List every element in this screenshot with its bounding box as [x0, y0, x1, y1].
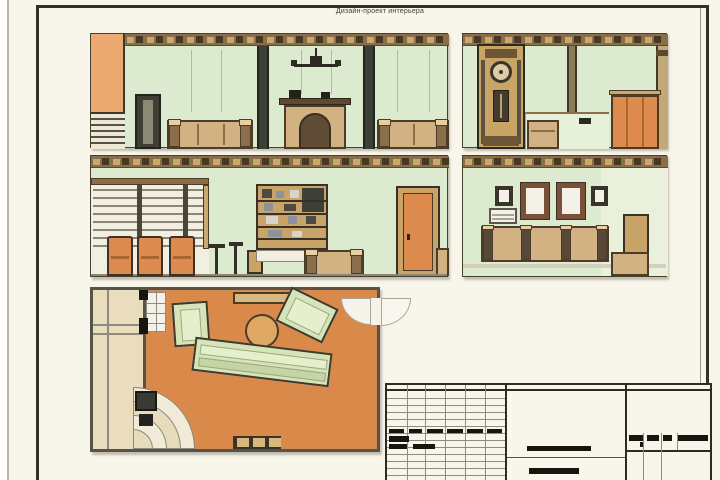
wall-panel-line: [221, 50, 222, 112]
cornice-dentil: [594, 36, 601, 43]
cornice-trim: [273, 159, 280, 165]
shelf-line: [258, 238, 326, 240]
cornice-dentil: [416, 36, 423, 43]
cornice-dentil: [574, 158, 581, 165]
grid-line-h: [387, 433, 505, 434]
title-block-cell-line: [661, 433, 662, 480]
pilaster-capital: [656, 50, 668, 56]
cornice-trim: [333, 159, 340, 165]
cornice-dentil: [342, 158, 349, 165]
plan-hall-divider: [107, 290, 109, 449]
title-block-header-smudge: [647, 435, 659, 441]
shelf-item: [266, 216, 278, 224]
cornice-trim: [465, 37, 472, 43]
cornice-trim: [605, 159, 612, 165]
radiator-line: [492, 214, 514, 216]
cornice-trim: [565, 37, 572, 43]
cornice-dentil: [534, 36, 541, 43]
cornice-dentil: [276, 36, 283, 43]
door: [396, 186, 440, 276]
clock-face-center: [499, 70, 503, 74]
cornice-dentil: [222, 158, 229, 165]
cornice-dentil: [396, 36, 403, 43]
sofa-seam: [413, 124, 415, 145]
cornice-dentil: [196, 36, 203, 43]
cornice-dentil: [594, 158, 601, 165]
cornice-dentil: [634, 36, 641, 43]
plan-hall-line: [93, 324, 145, 326]
sofa-post-cap: [520, 225, 532, 230]
cornice-trim: [413, 159, 420, 165]
grandfather-clock: [477, 44, 525, 149]
grid-line-h: [387, 419, 505, 420]
cornice-trim: [465, 159, 472, 165]
cornice-dentil: [176, 36, 183, 43]
cornice-dentil: [142, 158, 149, 165]
cornice-trim: [585, 37, 592, 43]
clock-pediment: [485, 49, 517, 58]
cornice-dentil: [102, 158, 109, 165]
cornice-dentil: [162, 158, 169, 165]
sofa: [167, 120, 253, 149]
clock-base: [483, 136, 519, 146]
chair-seat: [111, 256, 129, 259]
cabinet-divider: [626, 97, 628, 147]
clock-pendulum: [500, 94, 502, 118]
cornice-trim: [127, 37, 134, 43]
title-block-header-smudge: [629, 435, 643, 441]
cornice-dentil: [634, 158, 641, 165]
title-block-cell-line: [643, 433, 644, 480]
fireplace-mantel-shelf: [279, 98, 351, 105]
stool-leg: [234, 246, 237, 274]
sofa: [304, 250, 364, 276]
cornice-dentil: [362, 158, 369, 165]
cornice-dentil: [336, 36, 343, 43]
cornice-trim: [625, 159, 632, 165]
cornice-dentil: [654, 36, 661, 43]
grid-line-h: [387, 426, 505, 427]
blind-slat: [93, 213, 205, 215]
bench: [611, 252, 649, 276]
bar-chair: [137, 236, 163, 276]
sofa-seam: [223, 124, 225, 145]
plan-cabinet: [233, 436, 281, 449]
shelf-line: [258, 226, 326, 228]
cabinet-divider: [642, 97, 644, 147]
plan-shelving: [146, 292, 166, 332]
bar-chair: [169, 236, 195, 276]
cornice-dentil: [202, 158, 209, 165]
cornice-trim: [505, 159, 512, 165]
chandelier-arms: [294, 64, 338, 67]
plan-wall-segment: [139, 318, 148, 334]
sofa: [377, 120, 449, 149]
cornice-trim: [645, 159, 652, 165]
blind-slat: [93, 205, 205, 207]
title-block-doc-name-smudge: [527, 446, 591, 451]
fireplace-arch-opening: [299, 113, 331, 149]
blind-slat: [93, 197, 205, 199]
paper-edge-line: [7, 0, 9, 480]
cornice-dentil: [316, 36, 323, 43]
title-block-text-smudge: [389, 436, 409, 442]
title-block-divider: [625, 385, 627, 480]
long-sofa: [481, 226, 609, 262]
cornice-dentil: [554, 36, 561, 43]
chandelier-bulb: [291, 60, 297, 66]
cornice-trim: [545, 159, 552, 165]
title-block-header-smudge: [663, 435, 672, 441]
chandelier-bulb: [335, 60, 341, 66]
cornice-trim: [293, 159, 300, 165]
sofa-arm-cap: [350, 249, 363, 256]
pilaster: [363, 46, 375, 149]
shelf-item: [268, 230, 282, 237]
cornice-dentil: [376, 36, 383, 43]
cornice-dentil: [182, 158, 189, 165]
bench-cushion-line: [531, 130, 555, 132]
cornice: [463, 156, 668, 168]
chair-seat: [141, 256, 159, 259]
cornice-trim: [287, 37, 294, 43]
header-text-smudge: [409, 429, 422, 433]
cornice-trim: [193, 159, 200, 165]
chair-seat: [173, 256, 191, 259]
shelf-item: [292, 231, 302, 237]
cornice-trim: [645, 37, 652, 43]
stair-wall-orange: [91, 34, 125, 114]
grid-line-h: [387, 454, 505, 455]
title-block-mid-rule: [507, 457, 625, 458]
sofa-post-cap: [482, 225, 494, 230]
sofa-post: [483, 228, 493, 260]
wall-panel-line: [331, 50, 332, 94]
cornice-trim: [505, 37, 512, 43]
cornice-trim: [133, 159, 140, 165]
console-radiator: [489, 208, 517, 224]
cornice-trim: [347, 37, 354, 43]
cornice-trim: [387, 37, 394, 43]
picture-frame: [521, 183, 549, 219]
cornice-dentil: [322, 158, 329, 165]
cornice-trim: [187, 37, 194, 43]
bar-chair: [107, 236, 133, 276]
cornice-dentil: [614, 158, 621, 165]
stair-step: [91, 142, 125, 144]
stair-step: [91, 130, 125, 132]
staircase-steps: [91, 114, 125, 149]
cornice-trim: [233, 159, 240, 165]
cornice-trim: [153, 159, 160, 165]
blind-slat: [93, 229, 205, 231]
window-valance: [91, 178, 209, 185]
cornice-trim: [113, 159, 120, 165]
sofa-post: [561, 228, 571, 260]
sofa-arm-cap: [239, 119, 252, 126]
cornice-dentil: [442, 158, 449, 165]
wall-panel-line: [191, 50, 192, 112]
cabinet-square: [269, 438, 281, 447]
clock-side-column: [481, 60, 485, 144]
elevation-fireplace-wall: [90, 33, 448, 148]
cabinet-square: [237, 438, 249, 447]
title-block-revision-grid: [387, 385, 505, 480]
grid-line-h: [387, 468, 505, 469]
grid-line-h: [387, 398, 505, 399]
sofa-arm-cap: [168, 119, 181, 126]
cornice-trim: [247, 37, 254, 43]
cornice-dentil: [216, 36, 223, 43]
sofa-post-cap: [560, 225, 572, 230]
cornice-dentil: [302, 158, 309, 165]
cornice-trim: [327, 37, 334, 43]
cornice-trim: [407, 37, 414, 43]
radiator-line: [492, 218, 514, 220]
cornice: [91, 156, 449, 168]
sofa-arm-partial: [436, 248, 449, 276]
cornice-trim: [525, 159, 532, 165]
cornice-trim: [353, 159, 360, 165]
sofa-arm-cap: [435, 119, 448, 126]
cornice-trim: [93, 159, 100, 165]
cornice-trim: [373, 159, 380, 165]
cornice-dentil: [554, 158, 561, 165]
shelf-item: [262, 189, 272, 198]
blind-slat: [93, 221, 205, 223]
cornice-dentil: [136, 36, 143, 43]
cornice-dentil: [514, 36, 521, 43]
shelf-item: [284, 204, 296, 211]
door-leaf: [403, 193, 433, 271]
cornice-dentil: [422, 158, 429, 165]
header-text-smudge: [447, 429, 463, 433]
title-block-header-smudge: [678, 435, 708, 441]
sofa-post: [597, 228, 607, 260]
header-text-smudge: [467, 429, 483, 433]
shelf-item: [306, 216, 316, 224]
shelf-item: [288, 216, 297, 224]
wall-panel-line: [397, 50, 398, 112]
decor-item: [579, 118, 591, 124]
shelf-grid-line: [156, 293, 157, 332]
cornice-trim: [307, 37, 314, 43]
cornice-trim: [147, 37, 154, 43]
picture-frame-small: [591, 186, 608, 206]
grid-line-h: [387, 461, 505, 462]
cornice-trim: [545, 37, 552, 43]
cornice-dentil: [474, 158, 481, 165]
cornice-dentil: [382, 158, 389, 165]
cornice-trim: [173, 159, 180, 165]
cornice-dentil: [534, 158, 541, 165]
stair-cabinet-panel: [143, 100, 153, 144]
shelf-item: [276, 191, 284, 198]
cornice-dentil: [296, 36, 303, 43]
cornice-trim: [433, 159, 440, 165]
title-block-divider: [505, 385, 507, 480]
stair-step: [91, 136, 125, 138]
cornice-dentil: [402, 158, 409, 165]
cornice-dentil: [156, 36, 163, 43]
shelf-item: [264, 203, 273, 211]
stair-step: [91, 118, 125, 120]
title-block-rule: [627, 450, 710, 452]
cornice-trim: [227, 37, 234, 43]
door-knob: [407, 234, 410, 240]
cornice-dentil: [122, 158, 129, 165]
cornice-trim: [253, 159, 260, 165]
cornice-trim: [485, 37, 492, 43]
header-text-smudge: [487, 429, 502, 433]
cornice-dentil: [474, 36, 481, 43]
grid-line-h: [387, 412, 505, 413]
stool-leg: [215, 248, 218, 274]
cornice-trim: [267, 37, 274, 43]
cornice-trim: [367, 37, 374, 43]
bookshelf: [256, 184, 328, 250]
cornice-trim: [167, 37, 174, 43]
elevation-frames-wall: [462, 155, 667, 277]
shelf-item: [290, 190, 299, 198]
cornice-dentil: [574, 36, 581, 43]
title-block-doc-name-smudge: [529, 468, 579, 474]
drawing-sheet-scan: Дизайн-проект интерьера: [0, 0, 720, 480]
orange-cabinet: [611, 95, 659, 149]
shelf-line: [258, 200, 326, 202]
cornice-dentil: [262, 158, 269, 165]
cornice-dentil: [514, 158, 521, 165]
sofa-seam: [197, 124, 199, 145]
picture-frame: [557, 183, 585, 219]
sofa-arm-cap: [378, 119, 391, 126]
cornice-dentil: [256, 36, 263, 43]
cornice-dentil: [654, 158, 661, 165]
floor-plan: [90, 287, 380, 452]
sheet-title: Дизайн-проект интерьера: [290, 8, 470, 15]
cornice-trim: [213, 159, 220, 165]
cornice-trim: [207, 37, 214, 43]
plan-hall-line: [93, 333, 145, 335]
header-text-smudge: [389, 429, 404, 433]
stair-newel: [135, 391, 157, 411]
cornice-trim: [565, 159, 572, 165]
sofa-arm-cap: [305, 249, 318, 256]
grid-line-h: [387, 405, 505, 406]
pilaster: [257, 46, 269, 149]
title-block-text-smudge: [413, 444, 435, 449]
stair-step: [91, 124, 125, 126]
clock-side-column: [517, 60, 521, 144]
title-block-text-smudge: [389, 444, 407, 449]
sofa-post: [521, 228, 531, 260]
cornice-dentil: [614, 36, 621, 43]
blind-slat: [93, 189, 205, 191]
bench: [527, 120, 559, 149]
cornice-dentil: [494, 158, 501, 165]
title-block: [385, 383, 712, 480]
picture-frame-small: [495, 186, 513, 206]
header-text-smudge: [427, 429, 443, 433]
shelf-line: [258, 213, 326, 215]
grid-line-h: [387, 475, 505, 476]
cornice-trim: [393, 159, 400, 165]
cornice-dentil: [242, 158, 249, 165]
cornice: [125, 34, 449, 46]
cornice-dentil: [356, 36, 363, 43]
cornice-trim: [485, 159, 492, 165]
wall-panel-line: [301, 50, 302, 94]
cabinet-square: [253, 438, 265, 447]
cornice-dentil: [494, 36, 501, 43]
elevation-clock-wall: [462, 33, 667, 148]
cornice-dentil: [436, 36, 443, 43]
cornice-dentil: [282, 158, 289, 165]
shelf-item: [306, 203, 318, 211]
cornice-trim: [525, 37, 532, 43]
cornice-trim: [313, 159, 320, 165]
window-frame: [203, 185, 209, 249]
cornice-trim: [605, 37, 612, 43]
cornice-trim: [625, 37, 632, 43]
cornice-trim: [427, 37, 434, 43]
mantel-clock: [289, 90, 301, 98]
cornice-dentil: [236, 36, 243, 43]
cornice-trim: [585, 159, 592, 165]
wall-panel-line: [429, 50, 430, 112]
title-block-cell-line: [677, 433, 678, 450]
stair-newel-small: [139, 414, 153, 426]
sofa-post-cap: [596, 225, 608, 230]
plan-wall-segment: [139, 290, 148, 300]
elevation-window-wall: [90, 155, 448, 277]
